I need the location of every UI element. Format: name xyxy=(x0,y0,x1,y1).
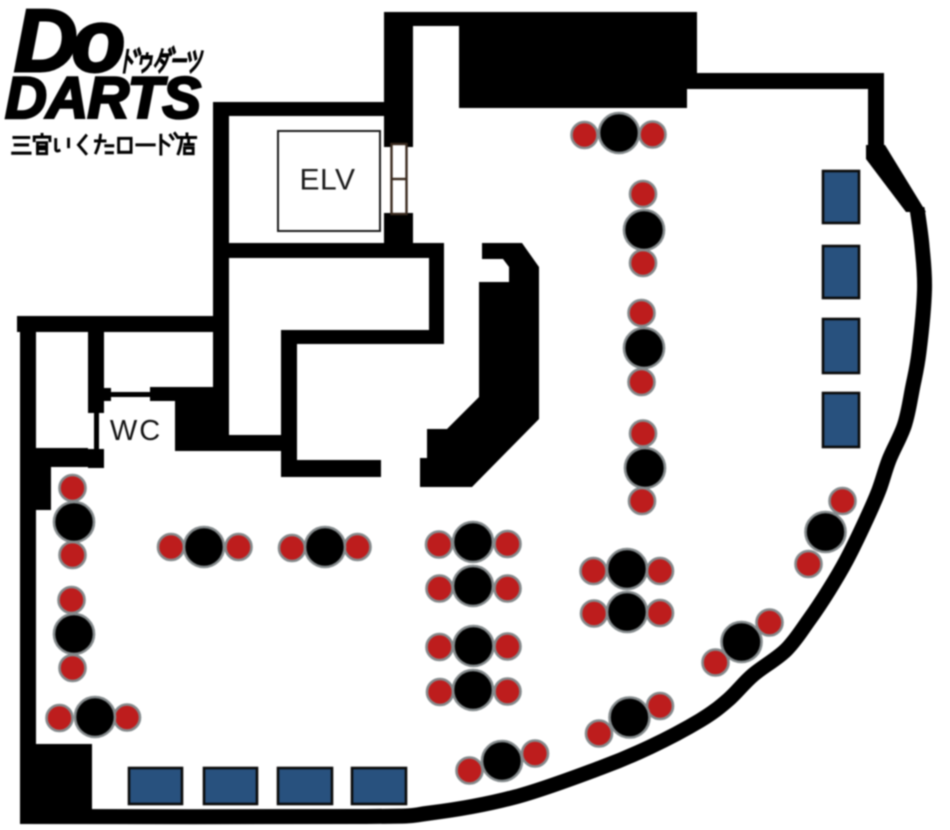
svg-text:ELV: ELV xyxy=(300,164,356,197)
svg-text:WC: WC xyxy=(110,415,162,447)
svg-text:DARTS: DARTS xyxy=(5,66,201,131)
